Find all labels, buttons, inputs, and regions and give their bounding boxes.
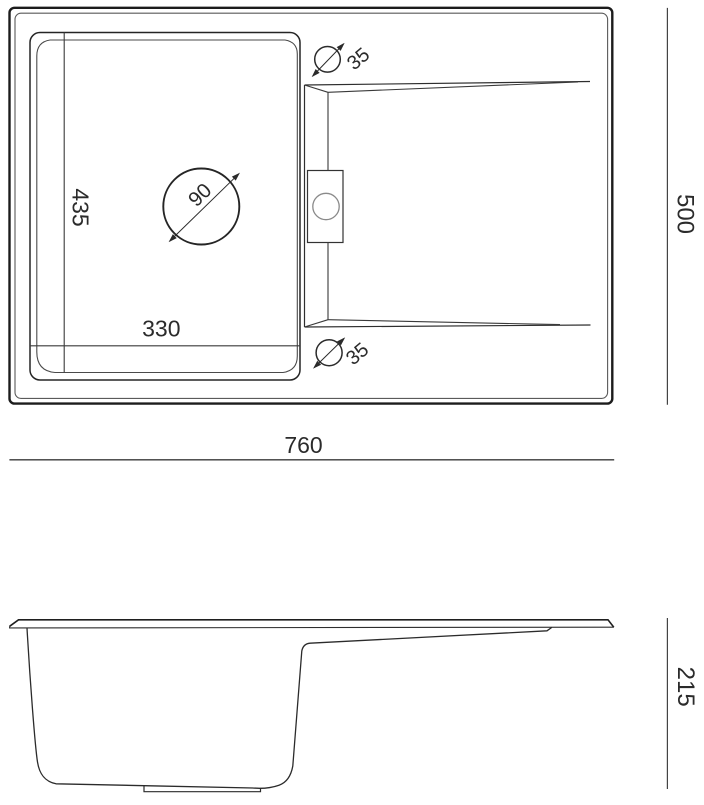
svg-text:760: 760: [284, 432, 322, 458]
svg-text:500: 500: [672, 194, 699, 234]
svg-text:35: 35: [343, 44, 374, 75]
svg-text:330: 330: [142, 316, 180, 342]
svg-text:435: 435: [68, 188, 94, 226]
svg-text:215: 215: [672, 667, 699, 707]
svg-text:35: 35: [342, 339, 373, 370]
svg-text:90: 90: [184, 179, 216, 211]
